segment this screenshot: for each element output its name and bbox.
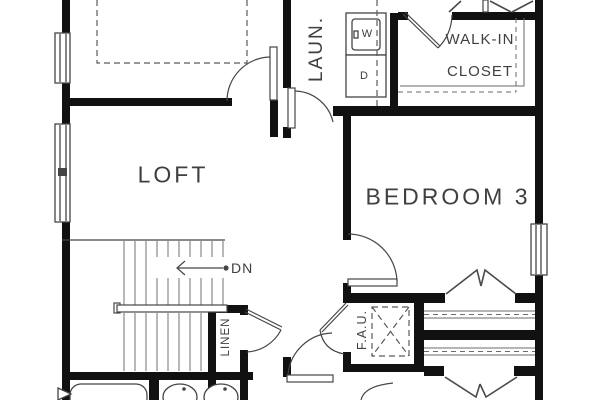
stairs (62, 240, 229, 371)
closet1-shelf (424, 311, 535, 318)
walkin-walls (398, 12, 536, 20)
top-edge-bifold-fragments (449, 0, 533, 12)
linen-door (245, 309, 282, 352)
closet2-bifold (445, 377, 517, 397)
left-window-double (55, 124, 70, 222)
walkin-closet-label: WALK-IN CLOSET (446, 32, 515, 80)
loft-label: LOFT (138, 162, 209, 189)
loft-hall-wall (62, 98, 278, 137)
fau-door (320, 303, 348, 354)
stairs-down-label: DN (231, 260, 253, 276)
loft-door (227, 47, 277, 101)
fau-unit-symbol (372, 307, 409, 356)
bedroom3-door (348, 234, 397, 286)
sink-left-icon (163, 384, 197, 400)
stair-landing-rail (117, 305, 227, 312)
bedroom3-closet-bifold (446, 270, 516, 294)
right-window (531, 224, 547, 275)
floor-plan: LOFT BEDROOM 3 WALK-IN CLOSET LAUN. LINE… (0, 0, 600, 400)
walkin-line2: CLOSET (447, 63, 513, 80)
dryer-label: D (360, 70, 368, 82)
linen-label: LINEN (220, 318, 232, 357)
laundry-door (288, 88, 333, 128)
washer-label: W (362, 28, 372, 40)
laundry-label: LAUN. (306, 16, 328, 82)
bathtub (58, 384, 147, 400)
fau-label: F.A.U. (355, 310, 369, 350)
closet2-shelf (424, 348, 535, 355)
right-exterior-wall (535, 0, 543, 400)
walkin-line1: WALK-IN (446, 31, 515, 48)
vanity-sinks (163, 384, 238, 400)
loft-ceiling-break (97, 0, 247, 63)
left-window-upper (55, 33, 70, 83)
faucet-dot-right (223, 387, 227, 391)
cutoff-door-arc (361, 383, 393, 400)
stairs-lower-treads (124, 313, 201, 371)
closet-walls (424, 330, 536, 376)
faucet-dot-left (182, 387, 186, 391)
bedroom3-label: BEDROOM 3 (365, 184, 530, 211)
